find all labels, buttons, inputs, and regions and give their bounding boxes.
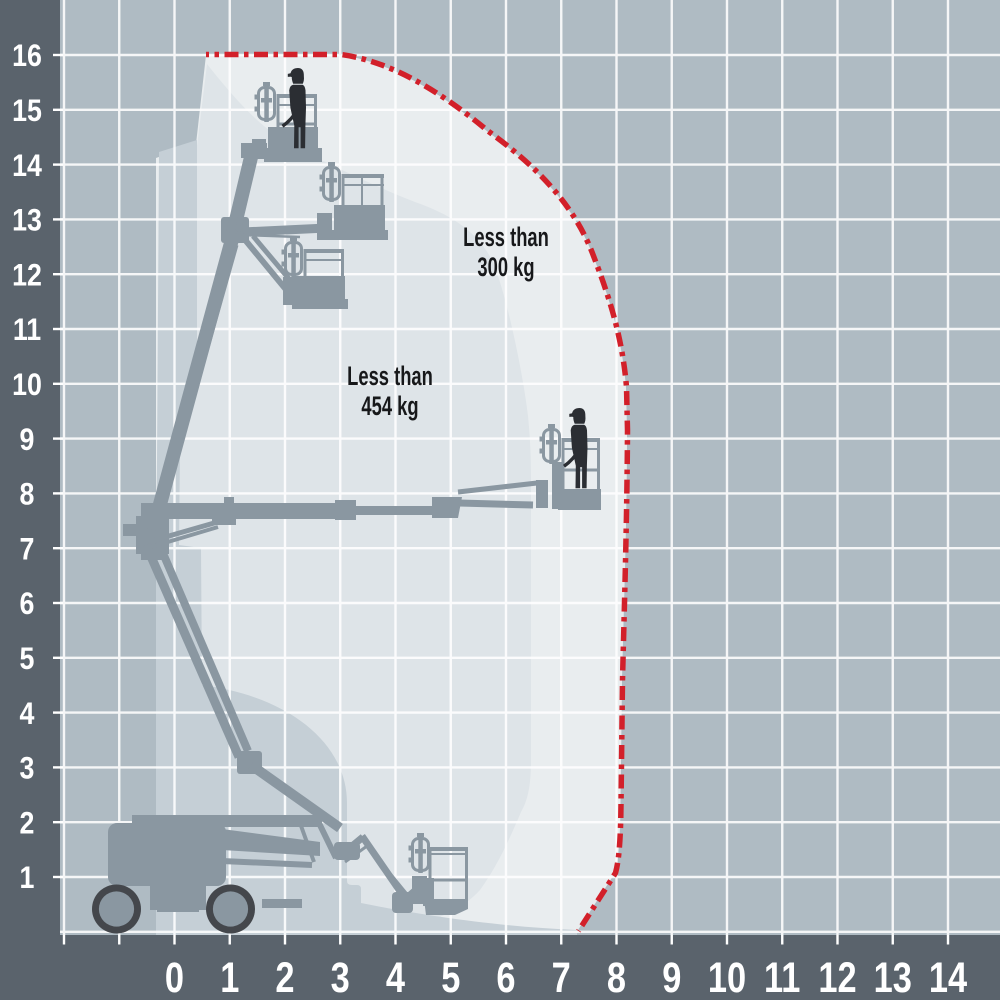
svg-text:11: 11 — [764, 954, 800, 1000]
svg-text:2: 2 — [275, 954, 294, 1000]
svg-text:Less than: Less than — [347, 360, 433, 390]
svg-text:9: 9 — [662, 954, 681, 1000]
svg-text:8: 8 — [20, 478, 35, 512]
svg-text:4: 4 — [20, 697, 36, 731]
svg-text:13: 13 — [874, 954, 912, 1000]
svg-text:1: 1 — [220, 954, 239, 1000]
svg-text:14: 14 — [12, 149, 42, 183]
svg-text:10: 10 — [708, 954, 746, 1000]
svg-text:7: 7 — [552, 954, 571, 1000]
svg-text:300 kg: 300 kg — [477, 251, 534, 281]
svg-text:12: 12 — [12, 258, 42, 292]
svg-text:3: 3 — [331, 954, 350, 1000]
svg-text:Less than: Less than — [463, 221, 549, 251]
svg-text:8: 8 — [607, 954, 626, 1000]
svg-text:16: 16 — [12, 39, 42, 73]
svg-text:9: 9 — [20, 423, 35, 457]
svg-text:2: 2 — [20, 806, 35, 840]
svg-text:5: 5 — [20, 642, 35, 676]
svg-text:14: 14 — [929, 954, 968, 1000]
svg-text:11: 11 — [13, 313, 41, 347]
svg-text:1: 1 — [20, 861, 35, 895]
svg-text:15: 15 — [12, 94, 42, 128]
svg-text:0: 0 — [165, 954, 184, 1000]
svg-text:12: 12 — [818, 954, 856, 1000]
svg-text:10: 10 — [12, 368, 42, 402]
svg-text:6: 6 — [20, 587, 35, 621]
svg-text:7: 7 — [20, 532, 35, 566]
svg-text:6: 6 — [496, 954, 515, 1000]
svg-text:3: 3 — [20, 752, 35, 786]
svg-text:13: 13 — [12, 204, 42, 238]
svg-text:5: 5 — [441, 954, 460, 1000]
svg-text:4: 4 — [386, 954, 405, 1000]
svg-text:454 kg: 454 kg — [361, 390, 418, 420]
